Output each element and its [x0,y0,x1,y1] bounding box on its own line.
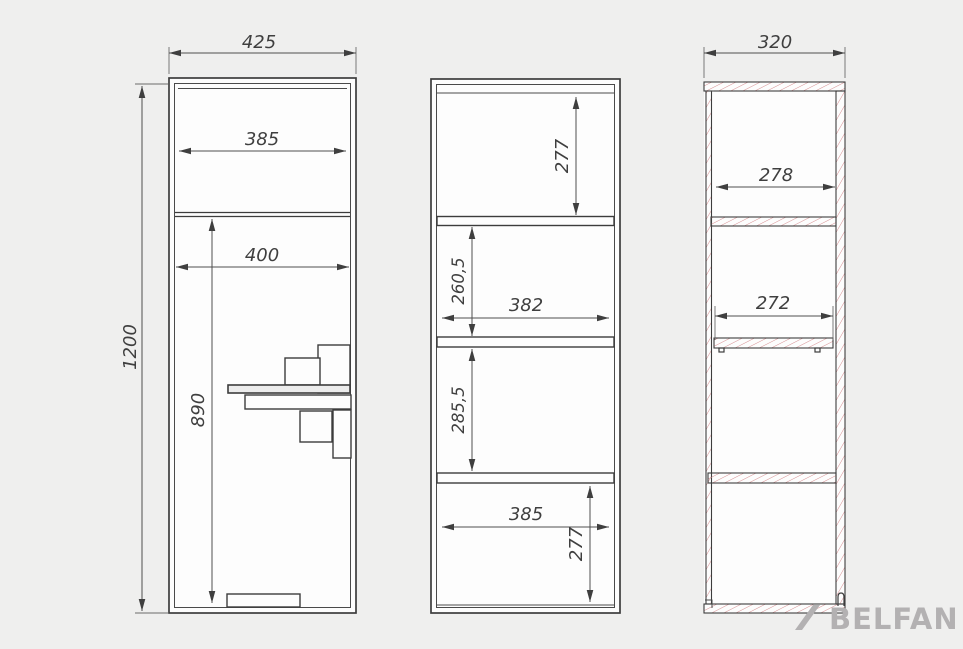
side-bottom-panel [704,604,845,613]
dim-side-overall-depth: 320 [704,32,845,78]
dim-label-section-bottom-inner-width: 385 [509,504,543,525]
side-top-panel [704,82,845,91]
section-shelf-1 [437,217,614,226]
front-view: 425 1200 385 400 890 [120,32,356,613]
technical-drawing: 425 1200 385 400 890 [0,0,963,649]
dim-label-side-shelf-depth: 272 [756,293,790,314]
dim-label-front-inner-width: 400 [245,245,279,266]
dim-label-side-top-inner-depth: 278 [759,165,793,186]
dim-label-side-overall-depth: 320 [758,32,792,53]
section-shelf-2 [437,337,614,347]
section-shelf-3 [437,473,614,483]
dim-front-overall-width: 425 [169,32,356,74]
drawing-page: 425 1200 385 400 890 [0,0,963,649]
dim-label-section-inner-width: 382 [509,295,543,316]
dim-label-front-top-inner-width: 385 [245,129,279,150]
side-shelf-1 [711,217,836,226]
dim-label-section-bottom-compartment: 277 [566,526,587,561]
dim-front-overall-height: 1200 [120,84,168,613]
dim-label-front-overall-height: 1200 [120,324,141,370]
side-shelf-2 [714,338,833,348]
section-view: 277 260,5 382 285,5 385 277 [431,79,620,613]
side-back-panel [706,91,712,604]
dim-label-section-top-compartment: 277 [552,138,573,173]
side-front-panel [836,91,845,604]
front-plinth [227,594,300,607]
dim-label-front-lower-height: 890 [188,393,209,427]
dim-label-section-third-compartment: 285,5 [449,386,468,433]
dim-label-section-second-compartment: 260,5 [449,257,468,304]
logo-text: BELFAN [829,602,959,636]
dim-label-front-overall-width: 425 [242,32,276,53]
side-view: 320 278 272 [704,32,845,613]
side-shelf-3 [708,473,836,483]
